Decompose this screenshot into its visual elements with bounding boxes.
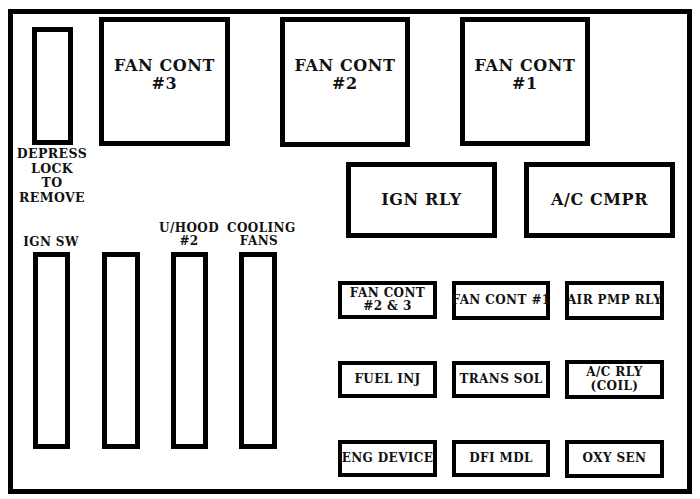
fan-cont-1-label: FAN CONT #1 — [474, 57, 575, 93]
fan-cont-2-label: FAN CONT #2 — [294, 57, 395, 93]
removal-note-line: DEPRESS — [14, 147, 90, 162]
removal-note-line: TO — [14, 176, 90, 191]
fuse-slot-u-hood-2 — [171, 252, 208, 449]
fuse-box-ac-rly-coil: A/C RLY (COIL) — [565, 360, 664, 399]
slot-label-cooling-fans: COOLING FANS — [227, 222, 291, 248]
fuse-box-dfi-mdl: DFI MDL — [452, 440, 550, 477]
fuse-box-trans-sol: TRANS SOL — [452, 361, 550, 398]
fuse-box-diagram: DEPRESS LOCK TO REMOVE FAN CONT #3 FAN C… — [0, 0, 700, 499]
ac-cmpr-label: A/C CMPR — [551, 191, 648, 209]
fuse-box-fan-cont-3: FAN CONT #3 — [99, 17, 230, 146]
fan-cont-2-line2: #2 — [294, 75, 395, 93]
fan-cont-2-3-line1: FAN CONT — [350, 287, 425, 301]
fan-cont-1-mini-label: FAN CONT #1 — [451, 294, 550, 308]
removal-note: DEPRESS LOCK TO REMOVE — [14, 147, 90, 205]
fuse-box-fuel-inj: FUEL INJ — [338, 361, 437, 398]
cooling-line2: FANS — [227, 235, 291, 248]
fuse-slot-removable — [32, 27, 73, 145]
fuse-box-ac-cmpr: A/C CMPR — [524, 162, 675, 238]
fuse-box-ign-rly: IGN RLY — [346, 162, 497, 238]
ac-rly-line1: A/C RLY — [586, 366, 642, 380]
fan-cont-1-line2: #1 — [474, 75, 575, 93]
ign-rly-label: IGN RLY — [381, 191, 462, 209]
fuse-box-air-pmp-rly: AIR PMP RLY — [565, 281, 664, 320]
fuse-box-fan-cont-2: FAN CONT #2 — [280, 17, 410, 147]
fan-cont-3-line2: #3 — [114, 75, 215, 93]
trans-sol-label: TRANS SOL — [459, 373, 542, 387]
slot-label-u-hood-2: U/HOOD #2 — [158, 222, 220, 248]
fan-cont-2-line1: FAN CONT — [294, 57, 395, 75]
slot-label-ign-sw: IGN SW — [19, 236, 83, 249]
fan-cont-3-label: FAN CONT #3 — [114, 57, 215, 93]
ac-rly-line2: (COIL) — [586, 380, 642, 394]
air-pmp-rly-label: AIR PMP RLY — [567, 294, 662, 308]
fuse-box-eng-device: ENG DEVICE — [338, 440, 437, 477]
eng-device-label: ENG DEVICE — [342, 452, 434, 466]
fuse-box-fan-cont-1: FAN CONT #1 — [460, 17, 590, 146]
fuse-box-fan-cont-2-3: FAN CONT #2 & 3 — [338, 281, 437, 319]
removal-note-line: REMOVE — [14, 191, 90, 206]
fuse-box-fan-cont-1-mini: FAN CONT #1 — [452, 281, 550, 320]
fan-cont-2-3-line2: #2 & 3 — [350, 300, 425, 314]
fuse-slot-unlabeled — [102, 252, 140, 449]
removal-note-line: LOCK — [14, 162, 90, 177]
ac-rly-coil-label: A/C RLY (COIL) — [586, 366, 642, 393]
oxy-sen-label: OXY SEN — [583, 452, 647, 466]
u-hood-line2: #2 — [158, 235, 220, 248]
fan-cont-2-3-label: FAN CONT #2 & 3 — [350, 287, 425, 314]
fuse-box-oxy-sen: OXY SEN — [565, 440, 664, 478]
fuse-slot-cooling-fans — [239, 252, 277, 449]
fuse-slot-ign-sw — [33, 252, 70, 449]
fan-cont-3-line1: FAN CONT — [114, 57, 215, 75]
fan-cont-1-line1: FAN CONT — [474, 57, 575, 75]
dfi-mdl-label: DFI MDL — [469, 452, 533, 466]
fuel-inj-label: FUEL INJ — [354, 373, 420, 387]
